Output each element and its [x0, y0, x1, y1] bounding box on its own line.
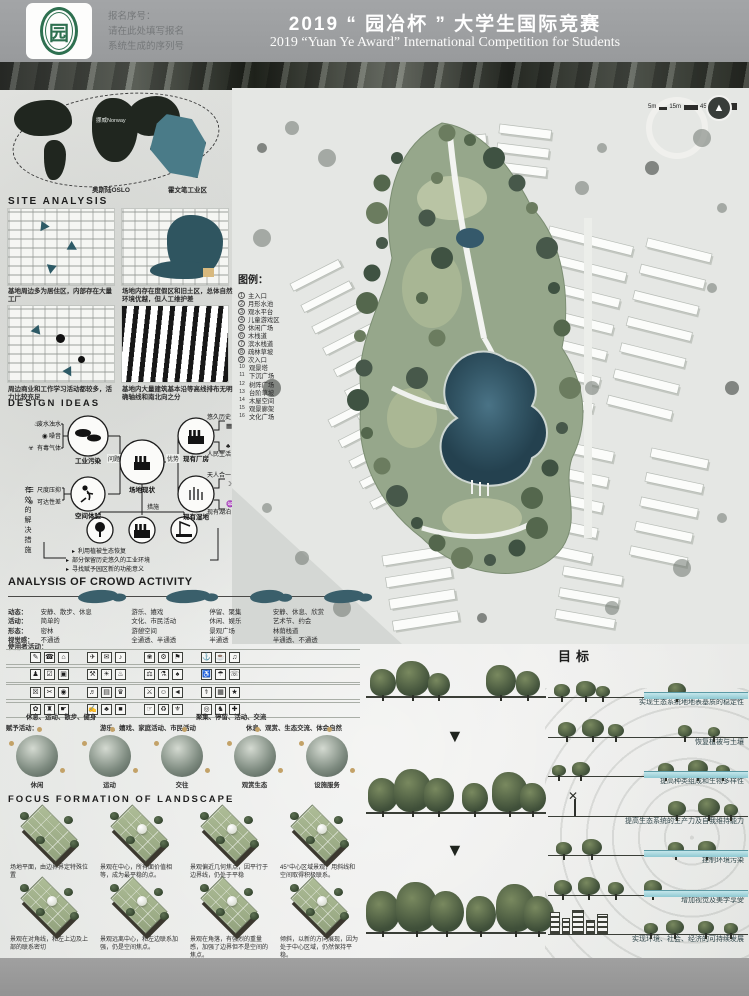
activity-photo: 交往 [149, 733, 215, 793]
tile-tree [110, 812, 119, 820]
logo-character: 园 [49, 17, 69, 46]
legend-number: 7 [238, 340, 245, 347]
iso-tile [284, 878, 358, 930]
goal-caption: 增加视觉及美学享受 [548, 896, 748, 906]
park-tree [347, 389, 369, 411]
tree-icon [578, 877, 600, 895]
activity-icon: ♣ [101, 704, 112, 715]
tree-icon [556, 842, 572, 855]
tile-tree [200, 884, 209, 892]
legend-title: 图例： [238, 271, 338, 286]
city-building-icon [562, 918, 570, 934]
goal-item: 实现环境、社会、经济的可持续发展 [548, 908, 748, 945]
activity-icon: ▤ [101, 687, 112, 698]
tile-tree [216, 908, 225, 916]
orbit-dot [182, 727, 187, 732]
tree-canopy [462, 783, 488, 812]
street-tree [597, 143, 607, 153]
tree-canopy [582, 839, 602, 855]
goal-item: 控制环境污染 [548, 829, 748, 866]
activity-icon: ❀ [144, 652, 155, 663]
legend-number: 3 [238, 308, 245, 315]
street-tree [257, 143, 267, 153]
street-tree [605, 601, 619, 615]
activity-icon: ♬ [87, 687, 98, 698]
tree-icon [668, 801, 686, 815]
crowd-row-label: 形态： [8, 626, 41, 635]
activity-photo: 观赏生态 [222, 733, 288, 793]
building-row [554, 566, 625, 631]
legend-item: 16文化广场 [238, 412, 338, 420]
registration-line1: 报名序号： [108, 9, 184, 24]
activity-icon: ⚑ [172, 652, 183, 663]
focus-row-2: 景观在对角线，和左上边及上部的联系密切景观远离中心，和左边联系加强，仍是空间焦点… [6, 878, 366, 960]
goal-section-art [548, 671, 748, 698]
tree-canopy [644, 923, 658, 934]
water-band [644, 850, 748, 857]
park-tree [521, 487, 543, 509]
moon-pool [456, 228, 484, 248]
park-tree [374, 175, 391, 192]
lake-icon: ♒ [226, 500, 232, 508]
tree-canopy [558, 722, 576, 736]
tile-tree [20, 812, 29, 820]
harmony-icon: ☽ [226, 480, 232, 488]
activity-photo-caption: 运动 [77, 780, 143, 789]
tree-canopy [578, 877, 600, 895]
park-tree [509, 175, 526, 192]
site-analysis-map-1 [8, 209, 114, 285]
park-tree [559, 377, 581, 399]
focal-sphere-icon [137, 824, 147, 834]
street-tree [707, 283, 717, 293]
tree-icon [554, 880, 572, 894]
tree-canopy [608, 882, 624, 895]
icon-grid-row: ✎☎⌂✈✉♪❀⚙⚑⚓☕♫ [6, 649, 360, 665]
tree-canopy [724, 923, 738, 934]
tile-tree [126, 836, 135, 844]
goal-caption: 恢复植被与土壤 [548, 738, 748, 748]
activity-photo-caption: 设施服务 [294, 780, 360, 789]
tile-tree [160, 840, 169, 848]
park-tree [484, 554, 496, 566]
activity-icon: ⚔ [144, 687, 155, 698]
space-item: 尺度压抑 [37, 486, 61, 494]
tree-canopy [520, 783, 546, 812]
tree-canopy [698, 921, 714, 934]
tree-icon [576, 681, 596, 697]
space-label: 空间体验 [75, 511, 102, 520]
park-tree [354, 330, 366, 342]
crowd-table: 动态：安静、散步、休息游乐、嬉戏停留、聚集安静、休息、欣赏活动：简单的文化、市民… [8, 607, 360, 645]
activity-icon: ✂ [44, 687, 55, 698]
street-tree [318, 149, 336, 167]
tree-icon [466, 896, 496, 932]
tile-tree [154, 888, 163, 896]
registration-line3: 系统生成的序列号 [108, 39, 184, 54]
vegetation-blob-row [8, 588, 360, 606]
legend-number: 13 [238, 389, 246, 396]
tile-tree [64, 888, 73, 896]
city-building-icon [572, 910, 584, 934]
activity-icon: ♻ [158, 704, 169, 715]
crowd-cell: 游乐、嬉戏 [131, 607, 209, 616]
crowd-row-label: 活动： [8, 616, 41, 625]
street-tree [477, 613, 487, 623]
tree-canopy [666, 920, 684, 934]
activity-photo-image [161, 735, 203, 777]
focus-caption: 景观在角落，有强烈的重量感，加强了边界但不是空间的焦点。 [190, 936, 268, 960]
crowd-cell: 半通透、不通透 [273, 635, 360, 644]
tree-canopy [582, 719, 604, 737]
activity-icon: ✉ [101, 652, 112, 663]
tree-canopy [554, 684, 570, 697]
street-tree [285, 121, 299, 135]
pollution-item: 噪音 [49, 432, 61, 440]
activity-icon: ★ [229, 687, 240, 698]
activity-photo-caption: 休闲 [4, 780, 70, 789]
street-tree [575, 181, 589, 195]
activity-icon: ☕ [215, 652, 226, 663]
street-tree [253, 229, 271, 247]
tree-canopy [370, 669, 396, 696]
tree-icon [558, 722, 576, 736]
tree-icon [724, 804, 738, 815]
tree-icon [698, 921, 714, 934]
crowd-cell: 林荫栈道 [273, 626, 360, 635]
tree-icon [554, 684, 570, 697]
tile-tree [334, 816, 343, 824]
continent-shape [14, 100, 72, 136]
crowd-cell: 景观广场 [209, 626, 273, 635]
down-arrow-icon: ▼ [446, 726, 464, 747]
tree-canopy [466, 896, 496, 932]
map-label-norway: 挪威Norway [96, 116, 126, 124]
scale-label-15m: 15m [669, 104, 681, 110]
focal-sphere-icon [227, 824, 237, 834]
design-ideas-flowchart: 问题 优势 工业污染 空间体验 场地现状 现有厂房 现有湿地 废水浊水 噪音 [4, 410, 232, 572]
crowd-activity-title: ANALYSIS OF CROWD ACTIVITY [8, 576, 193, 588]
space-item: 可达性差 [37, 498, 61, 506]
focus-row-1: 场地平面，由边界界定特殊位置景观在中心，所有面价值相等，成为最平稳的点。景观偏近… [6, 806, 366, 880]
street-tree [717, 513, 727, 523]
goal-section-art [548, 869, 748, 896]
iso-tile [104, 878, 178, 930]
activity-icon: ⚓ [201, 652, 212, 663]
plan-legend: 图例： 1主入口2月形水池3观水平台4儿童游戏区5休闲广场6木栈道7滨水栈道8疏… [238, 271, 338, 421]
activity-icon: ⚒ [87, 669, 98, 680]
scale-step [684, 105, 698, 110]
iso-tile [284, 806, 358, 858]
activity-icon: ⚗ [158, 669, 169, 680]
water-band [644, 771, 748, 778]
icon-grid-row: ☒✂◉♬▤♛⚔☺◄⚕▦★ [6, 684, 360, 700]
vegetation-blob [166, 588, 211, 604]
tree-icon [582, 839, 602, 855]
activity-caption-1: 休息、运动、散步、健身 [26, 712, 96, 721]
iso-tile [14, 878, 88, 930]
activity-icon: ♪ [115, 652, 126, 663]
north-arrow-icon: ▲ [706, 95, 732, 121]
activity-icon: ☂ [215, 669, 226, 680]
focus-diagram: 景观在对角线，和左上边及上部的联系密切 [6, 878, 96, 960]
site-analysis-map-2 [122, 209, 228, 285]
tile-tree [306, 836, 315, 844]
measure-item: 寻找赋予园区新的功能意义 [72, 565, 144, 572]
photo-collage-band [0, 62, 749, 90]
goals-panel: 目标 实现生态系统地地表基质的稳定性恢复植被与土壤提高种类组成和生物多样性提高生… [548, 642, 748, 948]
given-activity-label: 赋予活动： [6, 723, 38, 732]
crowd-cell: 安静、散步、休息 [41, 607, 132, 616]
park-tree [364, 265, 381, 282]
activity-photo-image [16, 735, 58, 777]
down-arrow-icon: ▼ [446, 840, 464, 861]
tree-icon [516, 671, 540, 696]
goal-caption: 提高种类组成和生物多样性 [548, 777, 748, 787]
iso-ground [20, 804, 77, 861]
goal-caption: 实现环境、社会、经济的可持续发展 [548, 935, 748, 945]
activity-icon: ⚜ [172, 704, 183, 715]
water-band [644, 692, 748, 699]
scale-step [659, 107, 667, 110]
park-tree [536, 237, 558, 259]
goal-caption: 实现生态系统地地表基质的稳定性 [548, 698, 748, 708]
tile-tree [110, 884, 119, 892]
activity-icon: ▣ [58, 669, 69, 680]
tree-canopy [486, 665, 516, 696]
goal-item: 增加视觉及美学享受 [548, 869, 748, 906]
focus-caption: 倾斜，以新的方向展现，因为处于中心区域，仍然保持平稳。 [280, 936, 358, 960]
pollution-label: 工业污染 [75, 456, 102, 465]
crowd-table-row: 视觉感：不通透全通透、半通透半通透半通透、不通透 [8, 635, 360, 644]
map-label-site: 霍文笔工业区 [168, 184, 207, 194]
park-tree [464, 134, 476, 146]
crowd-cell: 停留、聚集 [209, 607, 273, 616]
measure-item: 利用植被生态恢复 [78, 547, 126, 555]
activity-icon: ☀ [101, 669, 112, 680]
goal-section-art [548, 790, 748, 817]
crowd-table-row: 活动：简单的文化、市民活动休闲、娱乐艺术节、约会 [8, 616, 360, 625]
focus-diagram: 场地平面，由边界界定特殊位置 [6, 806, 96, 880]
registration-note: 报名序号： 请在此处填写报名 系统生成的序列号 [108, 9, 184, 54]
iso-tile [194, 878, 268, 930]
activity-icon: ◄ [172, 687, 183, 698]
crowd-cell: 半通透 [209, 635, 273, 644]
tree-icon [678, 725, 692, 736]
legend-number: 16 [238, 413, 246, 420]
measure-item: 部分保留历史悠久的工业环境 [72, 556, 150, 564]
tile-tree [154, 816, 163, 824]
activity-icon: ☞ [144, 704, 155, 715]
iso-tile [14, 806, 88, 858]
legend-number: 14 [238, 397, 246, 404]
park-tree [361, 427, 373, 439]
crowd-table-row: 动态：安静、散步、休息游乐、嬉戏停留、聚集安静、休息、欣赏 [8, 607, 360, 616]
icon-grid-row: ♟☑▣⚒☀♨⚖⚗♠♿☂☏ [6, 667, 360, 683]
tree-canopy [424, 778, 454, 812]
park-tree [526, 202, 538, 214]
focus-diagram: 45°中心区域景观，用斜线和空间取得积极联系。 [276, 806, 366, 880]
activity-icon: ☑ [44, 669, 55, 680]
design-ideas-title: DESIGN IDEAS [8, 398, 100, 409]
goal-item: 实现生态系统地地表基质的稳定性 [548, 671, 748, 708]
history-icon: ▦ [226, 423, 232, 430]
goal-section-art [548, 750, 748, 777]
tree-section [366, 762, 546, 814]
vegetation-blob [250, 589, 285, 604]
tree-canopy [678, 725, 692, 736]
waste-water-icon: ♨ [34, 420, 40, 428]
park-tree [526, 517, 548, 539]
park-tree [439, 125, 456, 142]
focus-caption: 景观在对角线，和左上边及上部的联系密切 [10, 936, 88, 952]
wetland-item: 天人合一 [207, 471, 231, 479]
site-analysis-caption-2: 场地内存在度假区和旧土区，总体自然环境优越，但人工维护差 [122, 288, 234, 304]
tile-tree [244, 888, 253, 896]
wetland-label: 现有湿地 [183, 512, 210, 521]
tree-canopy [708, 727, 720, 737]
park-tree [376, 237, 388, 249]
goal-section-art [548, 908, 748, 935]
succession-strip-3 [366, 876, 546, 934]
iso-tile [104, 806, 178, 858]
park-tree [542, 460, 559, 477]
activity-icon: ♠ [172, 669, 183, 680]
tree-canopy [516, 671, 540, 696]
activity-icon: ♟ [30, 669, 41, 680]
tree-icon [520, 783, 546, 812]
activity-photo: 运动 [77, 733, 143, 793]
tree-canopy [596, 686, 610, 697]
crowd-cell: 不通透 [41, 635, 132, 644]
tile-tree [244, 816, 253, 824]
focal-sphere-icon [317, 824, 327, 834]
factory-item: 悠久历史 [207, 413, 231, 421]
park-tree [483, 147, 505, 169]
tile-tree [200, 812, 209, 820]
park-tree [429, 535, 446, 552]
crowd-row-label: 动态： [8, 607, 41, 616]
center-label: 场地现状 [129, 485, 156, 494]
vegetation-blob [78, 589, 119, 605]
tree-icon [370, 669, 396, 696]
activity-icon: ☺ [158, 687, 169, 698]
activity-photo-image [234, 735, 276, 777]
windmill-icon [574, 799, 576, 816]
goal-section-art [548, 829, 748, 856]
toxic-gas-icon: ☣ [28, 444, 34, 452]
tree-canopy [572, 762, 590, 776]
tile-tree [70, 912, 79, 920]
legend-list: 1主入口2月形水池3观水平台4儿童游戏区5休闲广场6木栈道7滨水栈道8疏林草坡9… [238, 291, 338, 421]
tree-section [366, 876, 546, 934]
legend-number: 11 [238, 372, 246, 379]
legend-number: 9 [238, 356, 245, 363]
map-label-oslo: 奥斯陆OSLO [92, 184, 130, 194]
goal-item: 提高生态系统的生产力及自我维持能力 [548, 790, 748, 827]
tree-canopy [396, 661, 430, 696]
legend-number: 2 [238, 300, 245, 307]
vegetation-blob [324, 589, 365, 605]
iso-tile [194, 806, 268, 858]
legend-number: 6 [238, 332, 245, 339]
street-tree [295, 551, 309, 565]
activity-icon: ☏ [229, 669, 240, 680]
orbit-dot [327, 727, 332, 732]
tree-canopy [724, 804, 738, 815]
tile-tree [20, 884, 29, 892]
park-tree [374, 458, 391, 475]
tile-tree [160, 912, 169, 920]
tree-canopy [698, 798, 720, 816]
legend-label: 文化广场 [249, 412, 274, 421]
activity-caption-3: 聚集、停留、活动、交流 [196, 712, 266, 721]
tree-icon [428, 673, 450, 696]
tree-icon [698, 798, 720, 816]
factory-label: 现有厂房 [183, 454, 210, 463]
tile-tree [36, 836, 45, 844]
activity-icon: ◉ [58, 687, 69, 698]
logo-seal-icon: 园 [40, 7, 78, 55]
tile-tree [334, 888, 343, 896]
crowd-cell: 游憩空间 [131, 626, 209, 635]
goal-item: 提高种类组成和生物多样性 [548, 750, 748, 787]
poster-title-zh: 2019 “ 园冶杯 ” 大学生国际竞赛 [230, 9, 660, 36]
activity-photo-caption: 交往 [149, 780, 215, 789]
street-tree [717, 203, 727, 213]
tree-icon [644, 923, 658, 934]
street-tree [693, 129, 711, 147]
tile-tree [70, 840, 79, 848]
wetland-item: 现有湖泊 [207, 508, 231, 516]
tree-icon [424, 778, 454, 812]
scale-label-5m: 5m [648, 104, 656, 110]
legend-number: 1 [238, 292, 245, 299]
tree-canopy [556, 842, 572, 855]
tree-canopy [576, 681, 596, 697]
activity-icon: ■ [115, 704, 126, 715]
activity-icon: ✎ [30, 652, 41, 663]
legend-number: 5 [238, 324, 245, 331]
people-life-icon: ♣ [226, 443, 231, 450]
arrow-icon: ▸ [66, 558, 69, 564]
tile-tree [36, 908, 45, 916]
street-tree [585, 381, 599, 395]
park-tree [386, 485, 408, 507]
tile-tree [250, 840, 259, 848]
effective-solutions-label: 有效的解决措施 [22, 486, 32, 556]
tree-icon [582, 719, 604, 737]
activity-icon: ☎ [44, 652, 55, 663]
park-tree [556, 422, 568, 434]
site-analysis-map-4 [122, 306, 228, 382]
tree-icon [608, 882, 624, 895]
factory-item: 人民生活 [207, 450, 231, 458]
advantage-label: 优势 [167, 455, 179, 463]
tile-tree [290, 812, 299, 820]
activity-icon: ▦ [215, 687, 226, 698]
park-tree [451, 547, 473, 569]
tree-icon [552, 765, 566, 776]
focus-diagram: 景观在中心，所有面价值相等，成为最平稳的点。 [96, 806, 186, 880]
arrow-icon: ▸ [72, 549, 75, 555]
tree-icon [396, 661, 430, 696]
tree-canopy [428, 673, 450, 696]
park-tree [431, 172, 443, 184]
tile-tree [340, 912, 349, 920]
tree-icon [708, 727, 720, 737]
activity-photo-image [306, 735, 348, 777]
